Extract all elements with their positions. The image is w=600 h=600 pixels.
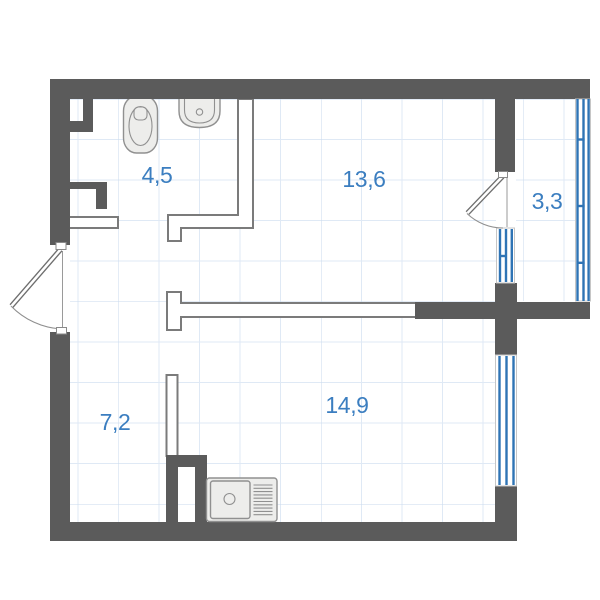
wall-left-lower (50, 332, 70, 541)
balcony-glazing (576, 99, 591, 301)
room-label-balcony: 3,3 (532, 188, 563, 214)
balcony-door-hinge (499, 172, 508, 178)
wall-pier-bar (70, 121, 93, 132)
bathroom-left-partition (68, 217, 118, 228)
floor-plan-drawing: 4,5 13,6 3,3 7,2 14,9 (0, 0, 600, 600)
wall-right-mid-block (495, 283, 517, 355)
floor-plan: 4,5 13,6 3,3 7,2 14,9 (0, 0, 600, 600)
entrance-door (11, 243, 67, 335)
room-label-living-room: 13,6 (342, 166, 385, 192)
duct-shaft-top (166, 455, 207, 467)
balcony-door-window (497, 228, 515, 283)
duct-shaft-right (195, 467, 207, 523)
entrance-door-swing-arc (11, 306, 61, 329)
wall-right-bottom-block (495, 486, 517, 541)
kitchen-sink-icon (207, 478, 278, 522)
wall-bottom (50, 522, 517, 541)
wall-top (50, 79, 590, 99)
room-label-bathroom: 4,5 (142, 162, 173, 188)
room-label-kitchen-living: 14,9 (325, 392, 368, 418)
room-label-hallway: 7,2 (100, 409, 131, 435)
wall-balcony-stub (495, 99, 515, 172)
kitchen-sink-bowl (211, 481, 251, 519)
wall-niche-column (96, 189, 107, 209)
kitchen-window (496, 355, 517, 486)
kitchen-partition (167, 375, 178, 456)
wall-left-upper (50, 99, 70, 245)
entrance-door-jamb (57, 328, 67, 335)
entrance-door-hinge (56, 243, 66, 250)
wall-niche-top (70, 182, 107, 189)
